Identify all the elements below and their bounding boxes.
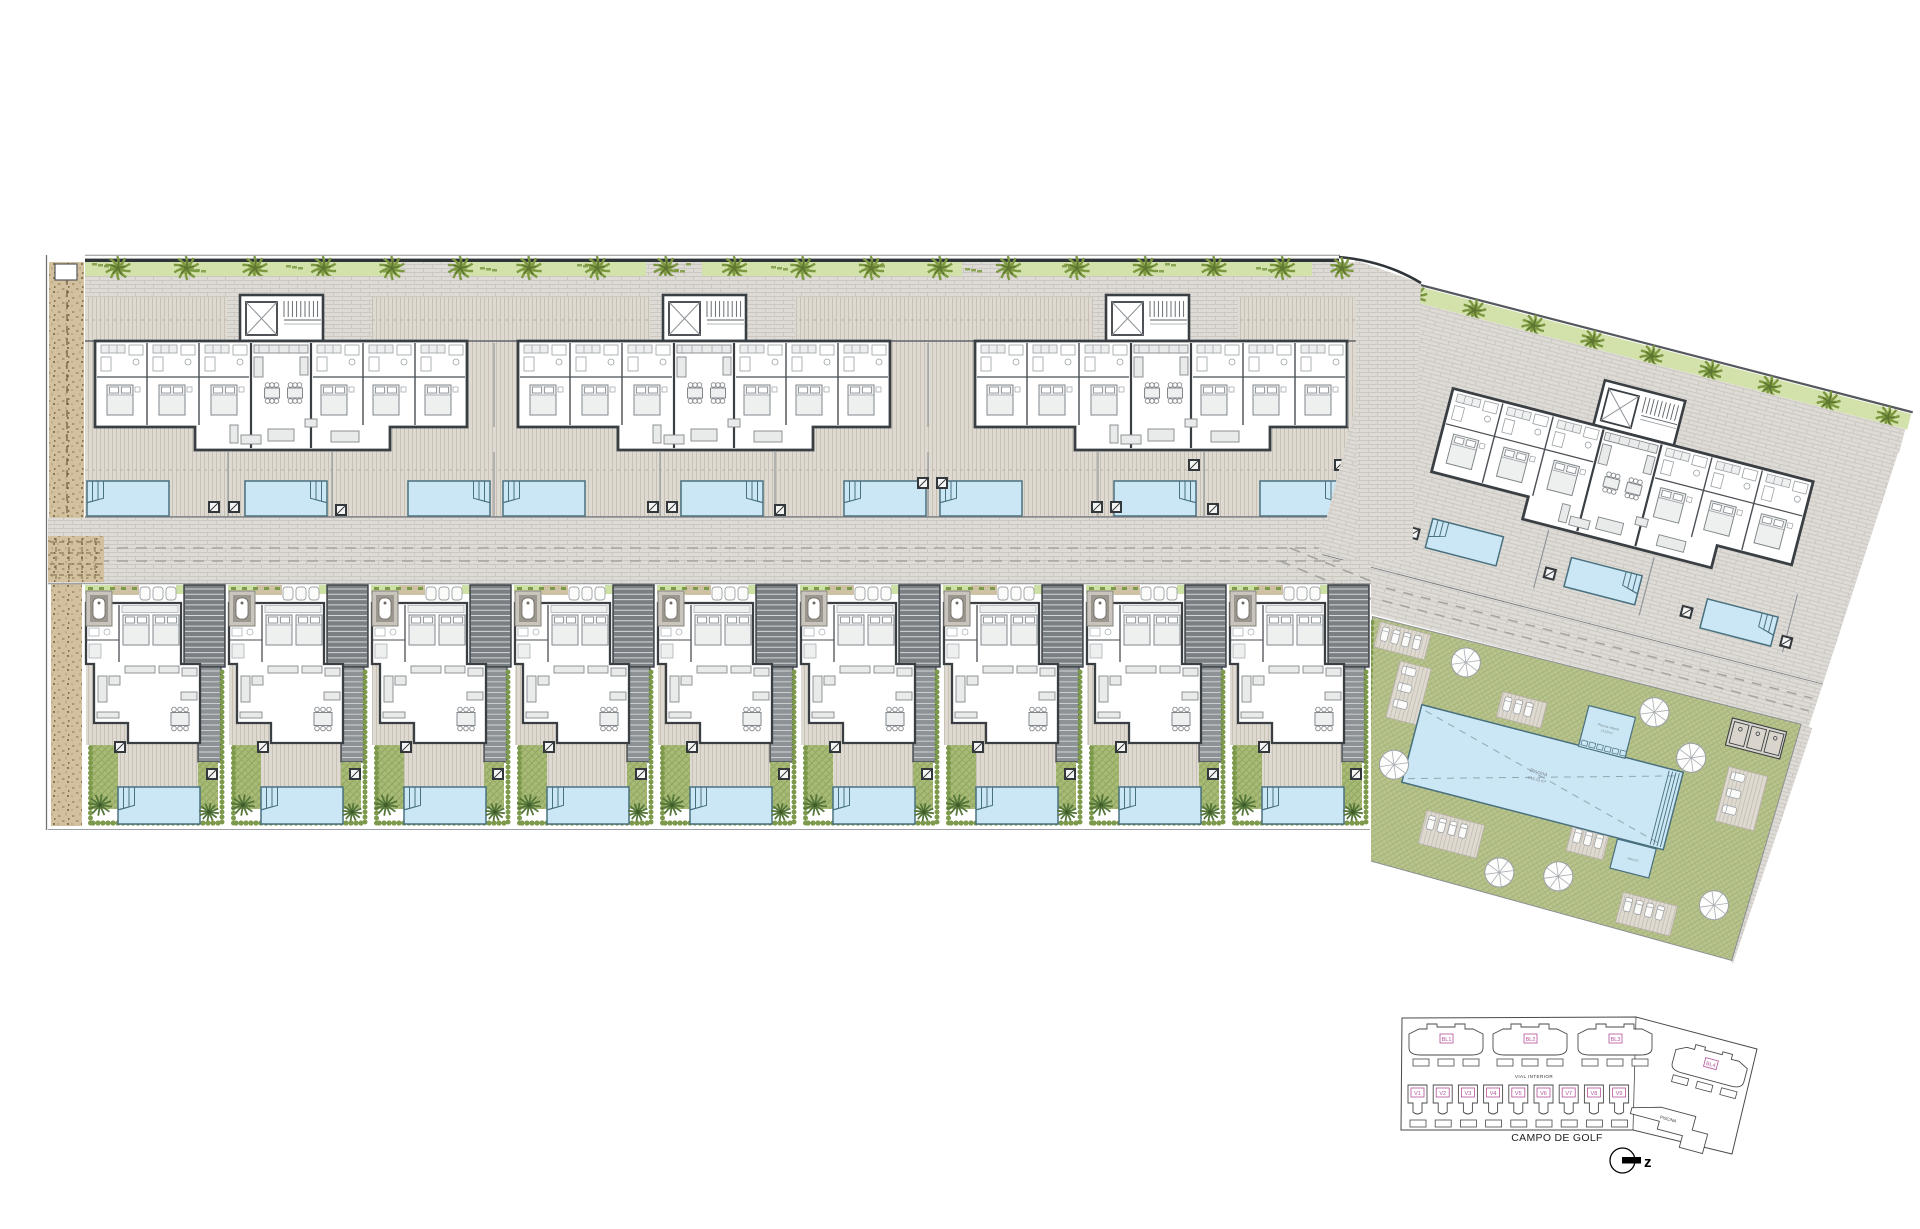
svg-text:BL1: BL1 (1442, 1037, 1452, 1043)
svg-text:V5: V5 (1515, 1091, 1522, 1097)
svg-text:V7: V7 (1565, 1091, 1572, 1097)
svg-text:V3: V3 (1465, 1091, 1472, 1097)
svg-text:V2: V2 (1439, 1091, 1446, 1097)
svg-text:V6: V6 (1540, 1091, 1547, 1097)
svg-text:BL3: BL3 (1611, 1037, 1621, 1043)
svg-text:CAMPO DE GOLF: CAMPO DE GOLF (1511, 1132, 1602, 1144)
svg-text:z: z (1644, 1154, 1652, 1171)
svg-text:BL2: BL2 (1526, 1037, 1536, 1043)
svg-text:V8: V8 (1591, 1091, 1598, 1097)
svg-text:V9: V9 (1616, 1091, 1623, 1097)
svg-text:V4: V4 (1490, 1091, 1497, 1097)
svg-text:V1: V1 (1414, 1091, 1421, 1097)
svg-text:VIAL INTERIOR: VIAL INTERIOR (1515, 1074, 1553, 1079)
